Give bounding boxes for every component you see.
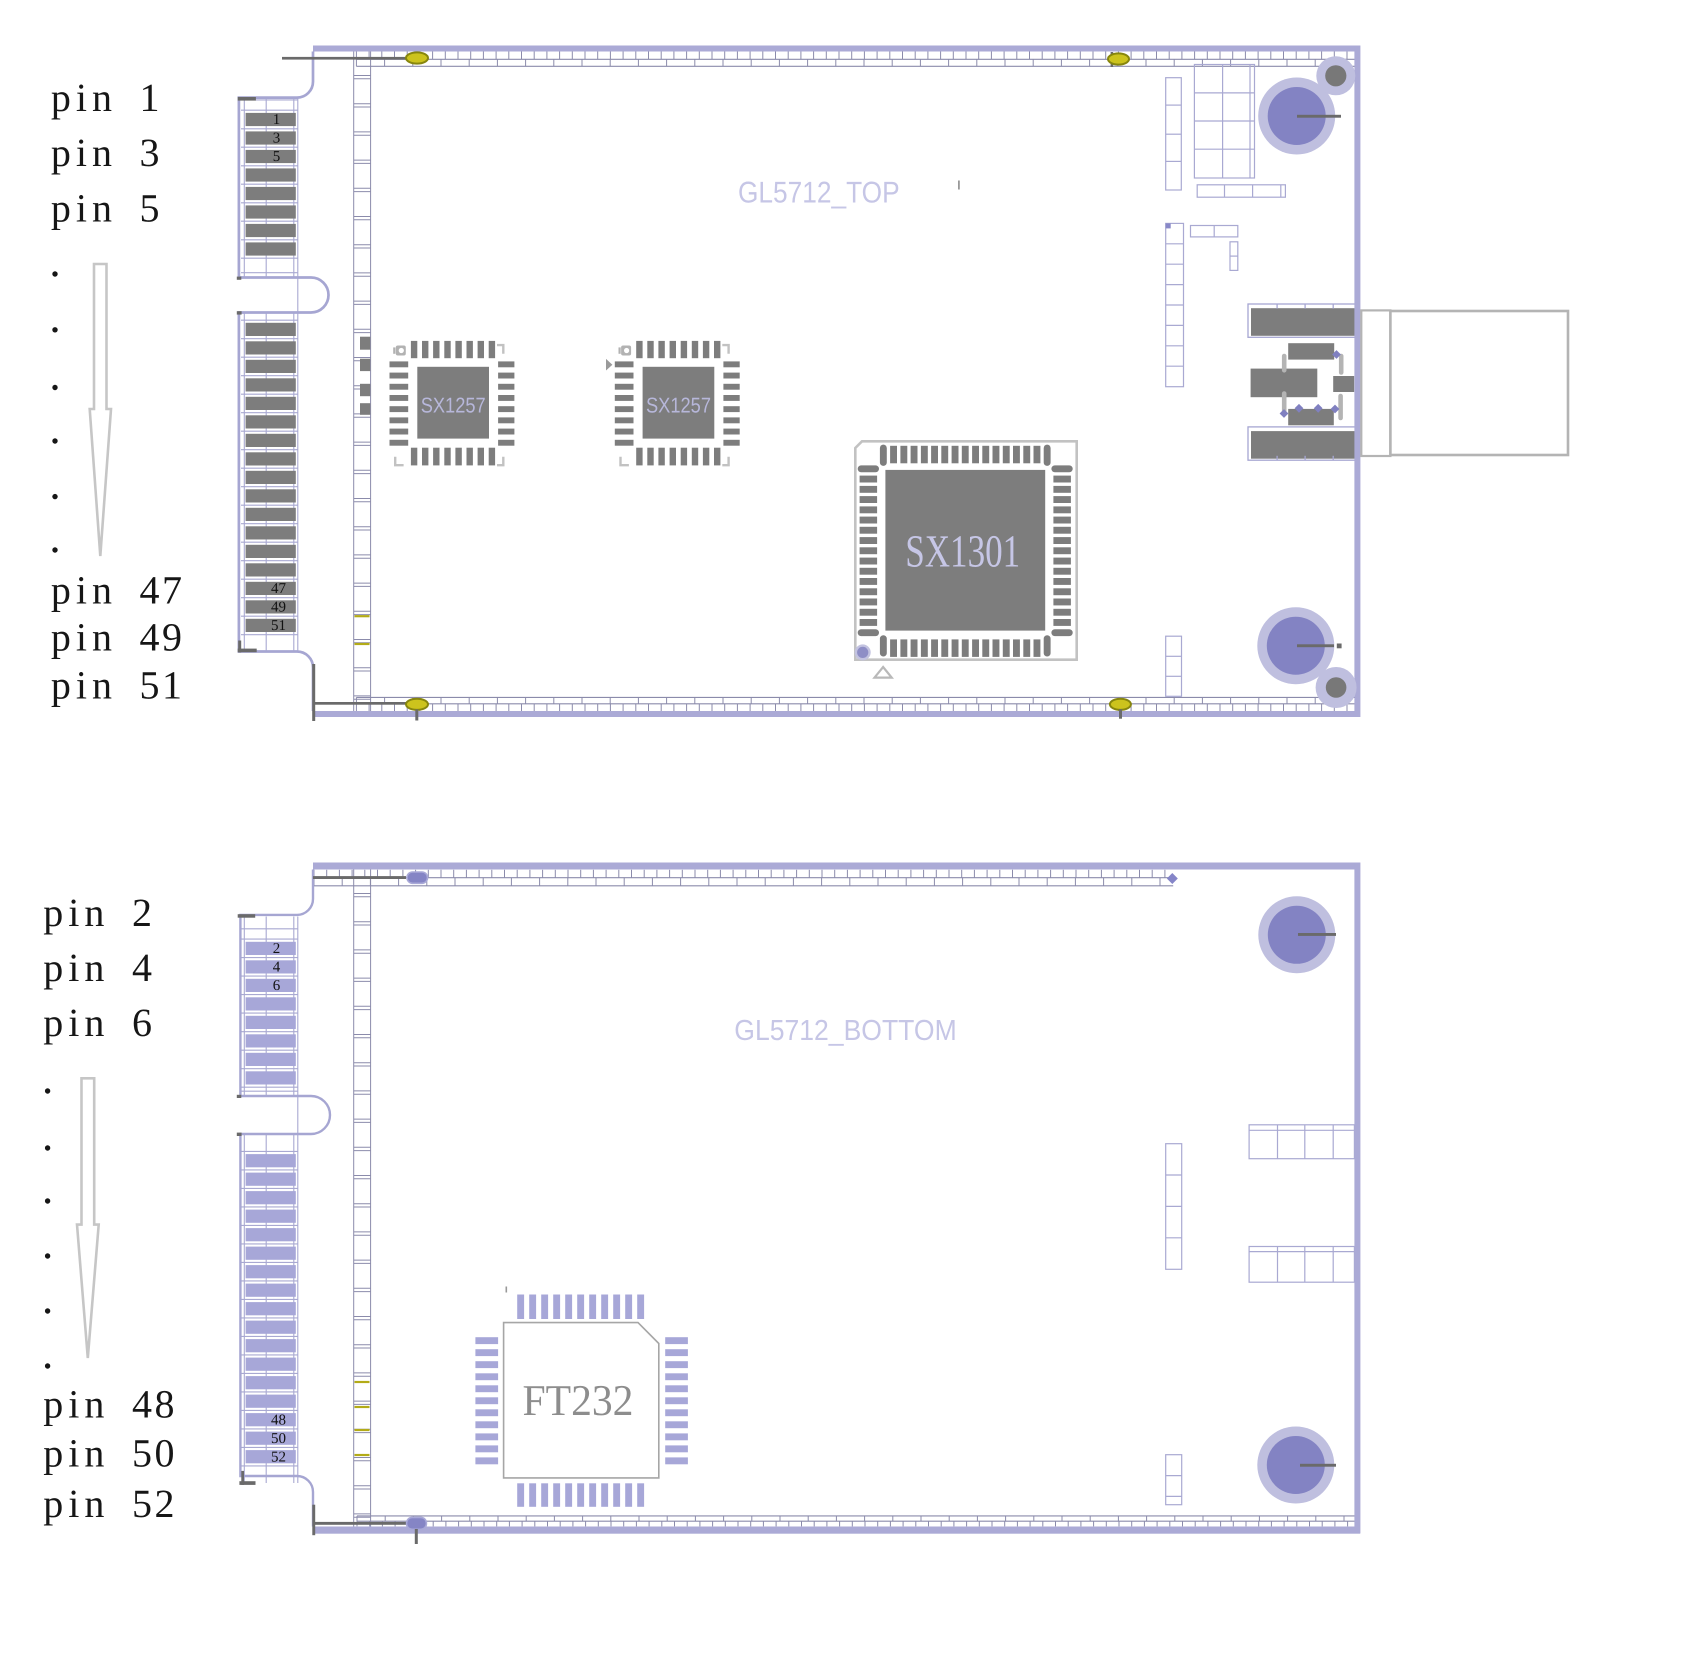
svg-text:47: 47 [271, 581, 287, 597]
svg-text:50: 50 [132, 1430, 177, 1475]
svg-text:pin: pin [43, 1000, 109, 1045]
svg-text:48: 48 [132, 1382, 177, 1427]
svg-text:2: 2 [132, 890, 155, 935]
svg-text:pin: pin [51, 130, 117, 175]
svg-text:SX1257: SX1257 [646, 393, 711, 417]
svg-text:SX1301: SX1301 [905, 525, 1020, 576]
svg-text:3: 3 [273, 131, 281, 147]
svg-text:SX1257: SX1257 [421, 393, 486, 417]
svg-text:51: 51 [140, 662, 185, 707]
svg-text:47: 47 [140, 568, 185, 613]
svg-text:pin: pin [43, 1382, 109, 1427]
svg-text:FT232: FT232 [523, 1376, 634, 1425]
svg-text:GL5712_BOTTOM: GL5712_BOTTOM [734, 1015, 956, 1047]
svg-text:pin: pin [51, 75, 117, 120]
svg-text:3: 3 [140, 130, 163, 175]
svg-text:pin: pin [51, 185, 117, 230]
svg-text:pin: pin [51, 662, 117, 707]
svg-text:4: 4 [273, 960, 281, 976]
svg-text:pin: pin [51, 568, 117, 613]
svg-text:49: 49 [140, 615, 185, 660]
svg-text:52: 52 [132, 1481, 177, 1526]
svg-text:GL5712_TOP: GL5712_TOP [738, 177, 900, 210]
svg-text:5: 5 [140, 185, 163, 230]
svg-text:49: 49 [271, 600, 286, 616]
svg-text:pin: pin [43, 890, 109, 935]
svg-text:pin: pin [51, 615, 117, 660]
svg-text:5: 5 [273, 149, 281, 165]
svg-text:pin: pin [43, 945, 109, 990]
svg-text:48: 48 [271, 1412, 286, 1428]
svg-text:52: 52 [271, 1449, 286, 1465]
svg-text:2: 2 [273, 941, 281, 957]
svg-text:6: 6 [132, 1000, 155, 1045]
svg-text:pin: pin [43, 1430, 109, 1475]
svg-text:1: 1 [273, 112, 281, 128]
svg-text:50: 50 [271, 1431, 286, 1447]
svg-text:4: 4 [132, 945, 155, 990]
svg-text:pin: pin [43, 1481, 109, 1526]
svg-text:51: 51 [271, 618, 286, 634]
svg-text:1: 1 [140, 75, 163, 120]
svg-text:6: 6 [273, 978, 281, 994]
